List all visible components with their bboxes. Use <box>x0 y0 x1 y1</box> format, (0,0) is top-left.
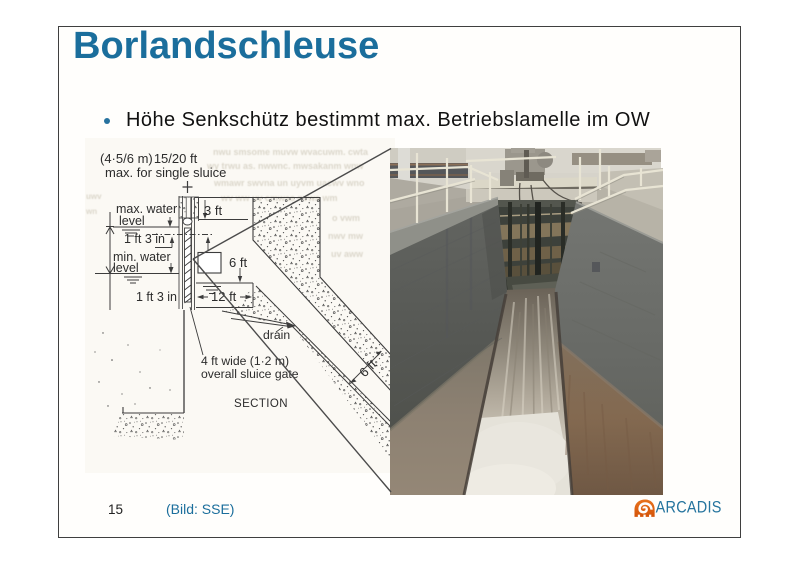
svg-text:ARCADIS: ARCADIS <box>656 498 722 516</box>
